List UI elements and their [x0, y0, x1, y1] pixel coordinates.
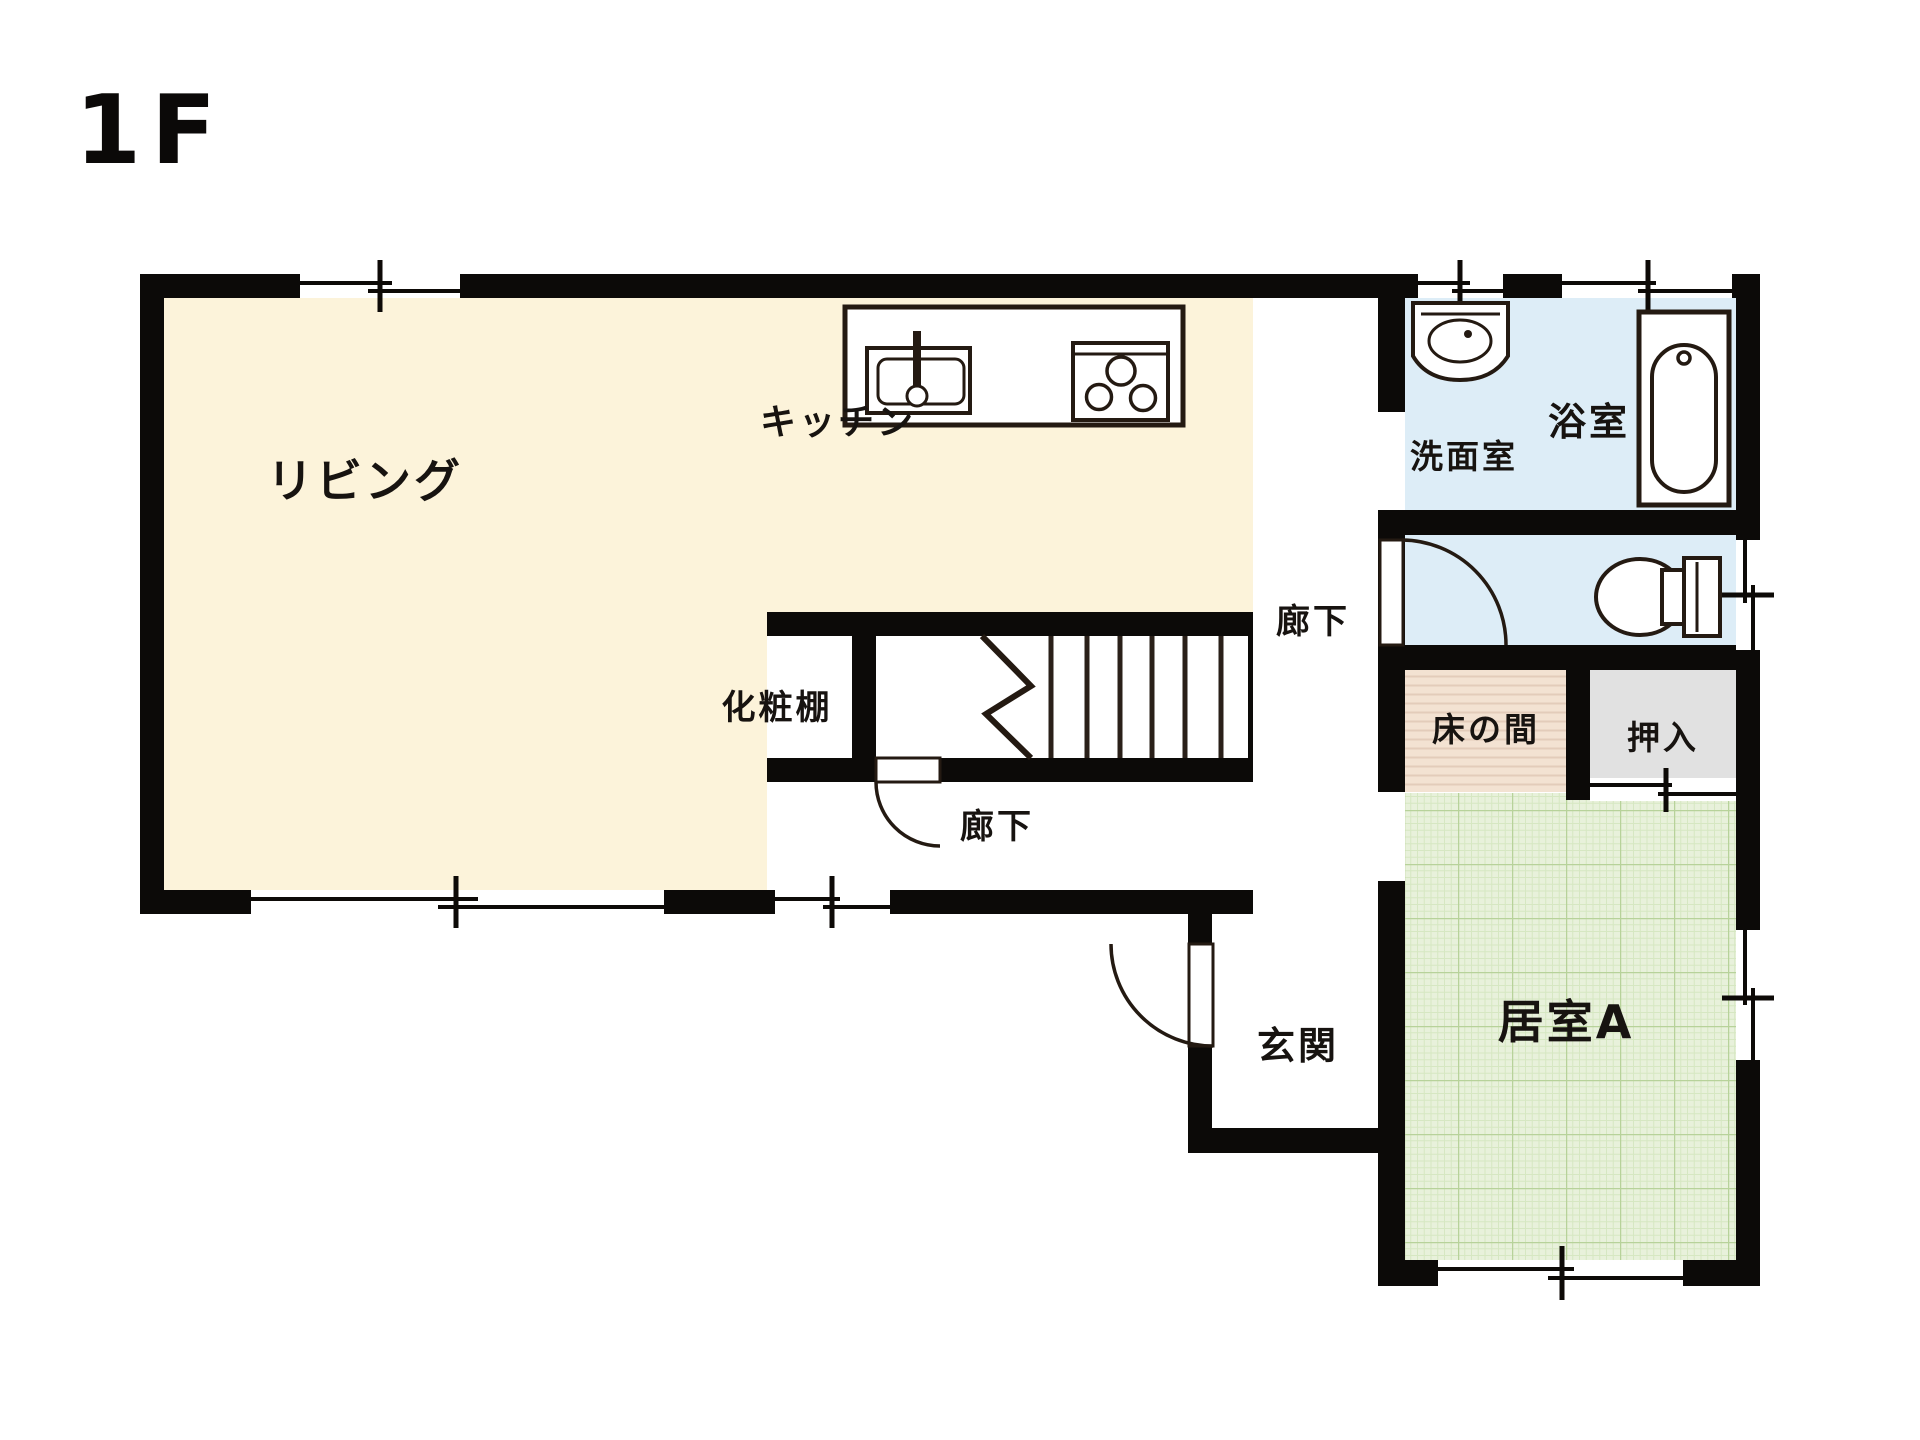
bathtub-icon: [1639, 312, 1729, 505]
stair-treads: [1051, 636, 1221, 758]
wall-right-lower: [1736, 1060, 1760, 1286]
wall-stairs-top: [767, 612, 1253, 636]
wall-tokonoma-closet-divider: [1566, 670, 1590, 800]
entrance-door: [1111, 944, 1213, 1046]
label-living: リビング: [267, 454, 463, 508]
wall-above-toilet: [1378, 510, 1760, 535]
label-vanity-shelf: 化粧棚: [722, 688, 833, 728]
label-tokonoma: 床の間: [1432, 710, 1540, 749]
wall-right-middle: [1736, 650, 1760, 930]
floor-plan-1f: 1F リビング キッチン 化粧棚 廊下 廊下 洗面室 浴室 床の間 押入 居室A…: [0, 0, 1920, 1440]
label-closet: 押入: [1627, 718, 1699, 757]
wall-below-toilet: [1378, 645, 1760, 670]
corridor-door: [876, 758, 940, 846]
label-corridor-upper: 廊下: [1276, 602, 1350, 642]
label-kitchen: キッチン: [760, 402, 916, 443]
wall-stairs-bottom-left: [767, 758, 876, 782]
floor-plan-page: 1F リビング キッチン 化粧棚 廊下 廊下 洗面室 浴室 床の間 押入 居室A…: [0, 0, 1920, 1440]
floor-title: 1F: [75, 76, 226, 186]
toilet-icon: [1596, 558, 1720, 636]
wall-entrance-bottom: [1188, 1128, 1405, 1153]
label-corridor-lower: 廊下: [960, 807, 1034, 847]
label-washroom: 洗面室: [1410, 437, 1518, 476]
wall-stairs-bottom-right: [940, 758, 1253, 782]
wall-left: [140, 274, 164, 914]
living-floor: [164, 298, 767, 890]
window-living-bottom-small: [775, 876, 890, 928]
wall-entrance-west-upper: [1188, 914, 1212, 944]
label-bathroom: 浴室: [1548, 400, 1630, 444]
wall-tokonoma-west: [1378, 670, 1405, 792]
label-room-a: 居室A: [1498, 995, 1635, 1049]
wall-stairs-inner: [852, 636, 876, 758]
wall-washroom-west: [1378, 298, 1405, 412]
label-entrance: 玄関: [1257, 1024, 1339, 1068]
washbasin-icon: [1413, 303, 1508, 380]
wall-right-upper: [1736, 274, 1760, 540]
wall-room-a-west: [1378, 881, 1405, 1286]
staircase: [982, 636, 1221, 758]
wall-stairs-right-edge: [1248, 612, 1253, 782]
stove-icon: [1073, 343, 1168, 420]
stair-break-mark: [982, 636, 1031, 758]
